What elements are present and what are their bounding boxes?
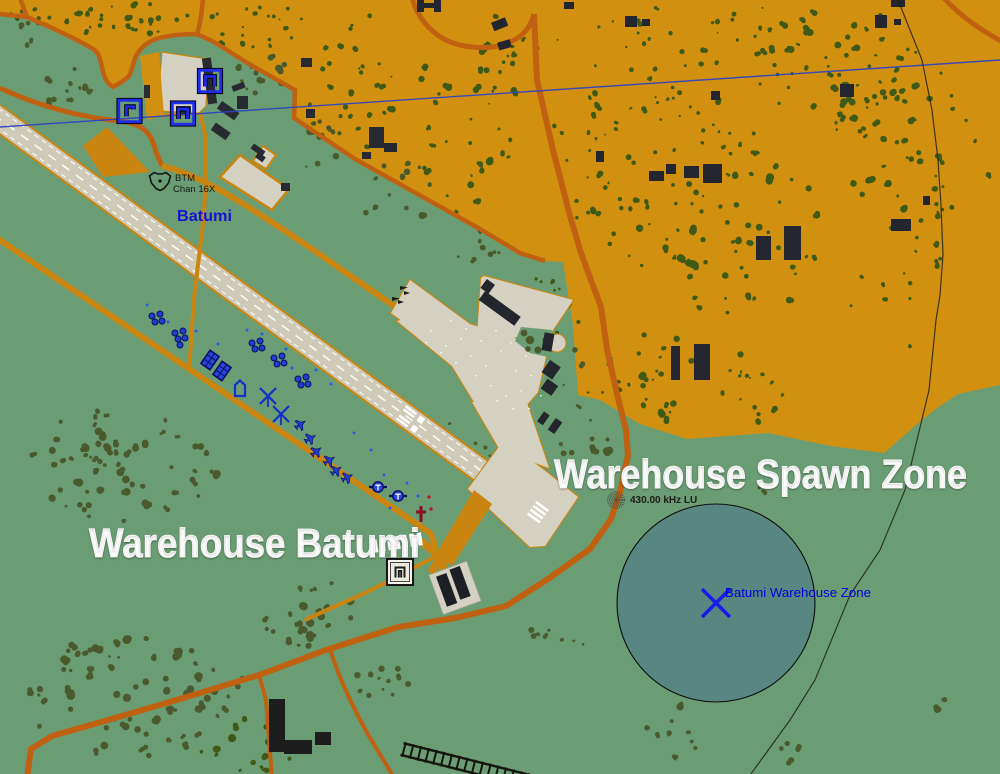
svg-text:Chan 16X: Chan 16X xyxy=(173,184,216,195)
svg-text:Warehouse Batumi: Warehouse Batumi xyxy=(89,520,420,566)
svg-text:Batumi: Batumi xyxy=(177,208,232,225)
svg-text:Batumi Warehouse Zone: Batumi Warehouse Zone xyxy=(725,586,871,600)
svg-text:Warehouse Spawn Zone: Warehouse Spawn Zone xyxy=(554,451,967,497)
svg-text:BTM: BTM xyxy=(175,173,195,184)
